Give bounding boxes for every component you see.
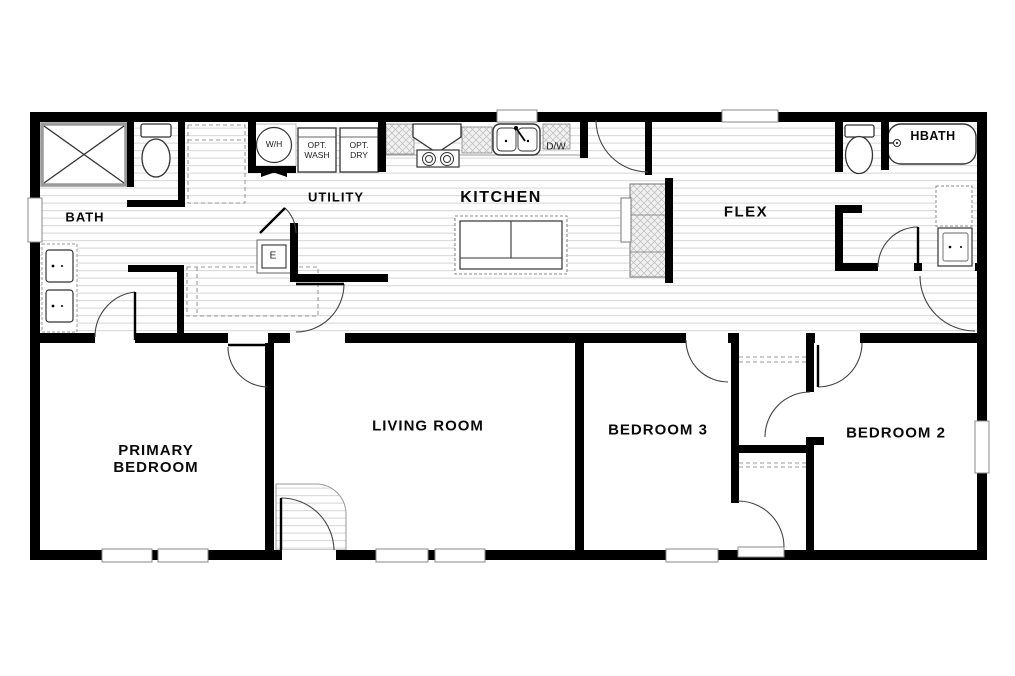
room-label-bedroom-2: BEDROOM 2	[846, 424, 946, 441]
room-label-kitchen: KITCHEN	[460, 189, 542, 207]
opt-dryer-label: OPT. DRY	[342, 141, 376, 161]
hbath-toilet-icon	[845, 125, 874, 174]
closet-door-leaf	[738, 547, 784, 557]
room-label-hbath: HBATH	[910, 129, 955, 143]
water-heater-label: W/H	[266, 140, 283, 150]
room-label-bath: BATH	[65, 211, 104, 226]
bedroom3-window	[666, 549, 718, 562]
room-label-primary-bedroom: PRIMARY BEDROOM	[94, 442, 219, 477]
primary-window-1	[102, 549, 152, 562]
bedroom2-door-arc	[818, 343, 862, 387]
bedroom2-window	[975, 421, 989, 473]
floor-plan-drawing	[0, 0, 1015, 676]
bedroom3-door-arc	[686, 340, 728, 382]
room-label-bedroom-3: BEDROOM 3	[608, 421, 708, 438]
kitchen-sink-icon	[493, 124, 540, 155]
bedroom2-closet-door-arc	[765, 392, 810, 437]
room-label-flex: FLEX	[724, 203, 768, 220]
hbath-vanity-icon	[936, 186, 972, 266]
kitchen-window	[497, 110, 537, 122]
floor-plan-canvas: BATH UTILITY KITCHEN FLEX HBATH PRIMARY …	[0, 0, 1015, 676]
flex-window	[722, 110, 778, 122]
room-label-utility: UTILITY	[308, 191, 364, 206]
primary-window-2	[158, 549, 208, 562]
entry-landing	[276, 484, 346, 550]
electrical-panel-label: E	[270, 250, 277, 262]
toilet-icon	[141, 124, 171, 177]
living-window-2	[435, 549, 485, 562]
bath-window	[28, 198, 42, 242]
living-window-1	[376, 549, 428, 562]
bath-vanity-icon	[42, 244, 77, 332]
opt-washer-label: OPT. WASH	[298, 141, 336, 161]
entry-door-opening	[282, 550, 336, 560]
room-label-living-room: LIVING ROOM	[372, 417, 484, 434]
kitchen-island-icon	[455, 216, 567, 274]
shower-icon	[42, 124, 126, 185]
primary-bedroom-door-arc	[228, 347, 268, 387]
bedroom3-closet-door-arc	[738, 501, 784, 547]
dishwasher-label: D/W	[546, 141, 565, 153]
